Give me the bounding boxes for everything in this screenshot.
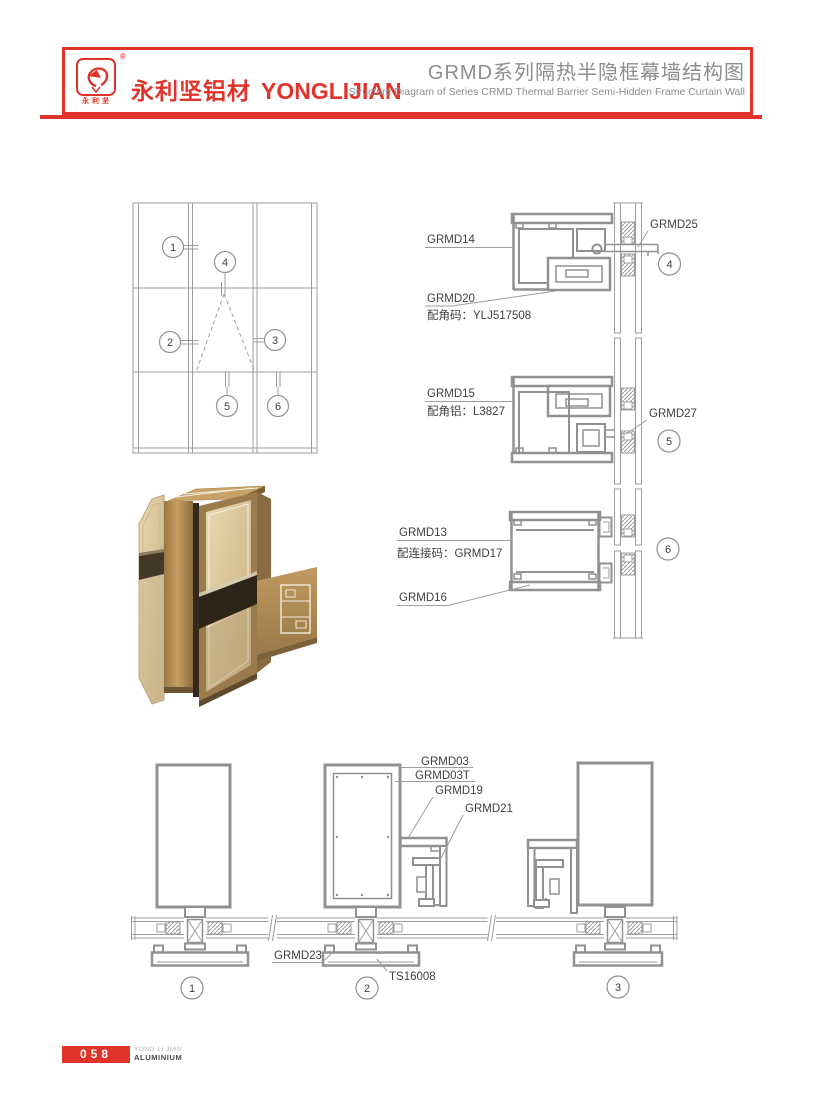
- glazing-gaskets: [622, 222, 635, 575]
- detail-6-profile: [510, 512, 612, 590]
- elevation-marker-5: 5: [217, 372, 238, 417]
- marker-number: 6: [665, 544, 671, 556]
- label-grmd27: GRMD27: [649, 408, 697, 420]
- label-grmd14: GRMD14: [427, 234, 476, 246]
- label-grmd03t: GRMD03T: [415, 770, 470, 782]
- label-grmd13-note: 配连接码：GRMD17: [397, 546, 502, 560]
- bottom-marker-1: 1: [181, 977, 203, 999]
- vent-channel-profile: [401, 838, 447, 906]
- bottom-sections: GRMD03 GRMD03T GRMD19 GRMD21 GRMD23 TS16…: [131, 756, 677, 999]
- bottom-marker-2: 2: [356, 977, 378, 999]
- label-grmd25: GRMD25: [650, 219, 698, 231]
- label-grmd20-note: 配角码：YLJ517508: [427, 309, 531, 322]
- drawing-canvas: 1 2 3 4 5: [0, 0, 817, 1101]
- marker-number: 6: [275, 401, 281, 413]
- detail-4-profile: [512, 214, 612, 290]
- detail-marker-6: 6: [657, 538, 679, 560]
- label-ts16008: TS16008: [389, 971, 436, 983]
- marker-number: 1: [170, 242, 176, 254]
- elevation-marker-1: 1: [163, 237, 199, 258]
- marker-number: 4: [222, 257, 228, 269]
- label-grmd19: GRMD19: [435, 785, 483, 797]
- section-3-mullion: [574, 763, 662, 966]
- detail-5-profile: [512, 377, 615, 462]
- vent-clip-profile: [413, 858, 440, 906]
- marker-number: 5: [666, 436, 672, 448]
- section-2-mullion: [323, 765, 447, 966]
- elevation-marker-4: 4: [215, 252, 236, 291]
- section-details: GRMD14 GRMD20 配角码：YLJ517508 GRMD25 4 GRM…: [397, 203, 698, 638]
- marker-number: 3: [615, 982, 621, 994]
- marker-number: 3: [272, 335, 278, 347]
- elevation-diagram: 1 2 3 4 5: [133, 203, 317, 453]
- catalog-page: ® 永利坚 永利坚铝材YONGLIJIAN GRMD系列隔热半隐框幕墙结构图 S…: [0, 0, 817, 1101]
- horizontal-glazing-band: [131, 915, 677, 941]
- page-number-badge: 058: [62, 1046, 130, 1063]
- label-grmd03: GRMD03: [421, 756, 469, 768]
- marker-number: 4: [666, 259, 672, 271]
- label-grmd20: GRMD20: [427, 293, 475, 305]
- assembly-3d-render: [139, 486, 317, 707]
- marker-number: 2: [167, 337, 173, 349]
- detail-marker-4: 4: [659, 253, 681, 275]
- label-grmd21: GRMD21: [465, 803, 513, 815]
- detail-marker-5: 5: [658, 430, 680, 452]
- marker-number: 2: [364, 983, 370, 995]
- label-grmd23: GRMD23: [274, 950, 322, 962]
- section-1-mullion: [152, 765, 248, 966]
- bottom-marker-3: 3: [607, 976, 629, 998]
- label-grmd16: GRMD16: [399, 592, 447, 604]
- vent-channel-profile-mirrored: [528, 840, 577, 913]
- marker-number: 5: [224, 401, 230, 413]
- footer-brand-en: YONG LI JIAN: [134, 1046, 182, 1053]
- label-grmd15: GRMD15: [427, 388, 475, 400]
- label-grmd15-note: 配角铝：L3827: [427, 404, 505, 418]
- label-grmd13: GRMD13: [399, 527, 447, 539]
- marker-number: 1: [189, 983, 195, 995]
- elevation-marker-6: 6: [268, 372, 289, 417]
- footer-brand-aluminium: ALUMINIUM: [134, 1053, 182, 1062]
